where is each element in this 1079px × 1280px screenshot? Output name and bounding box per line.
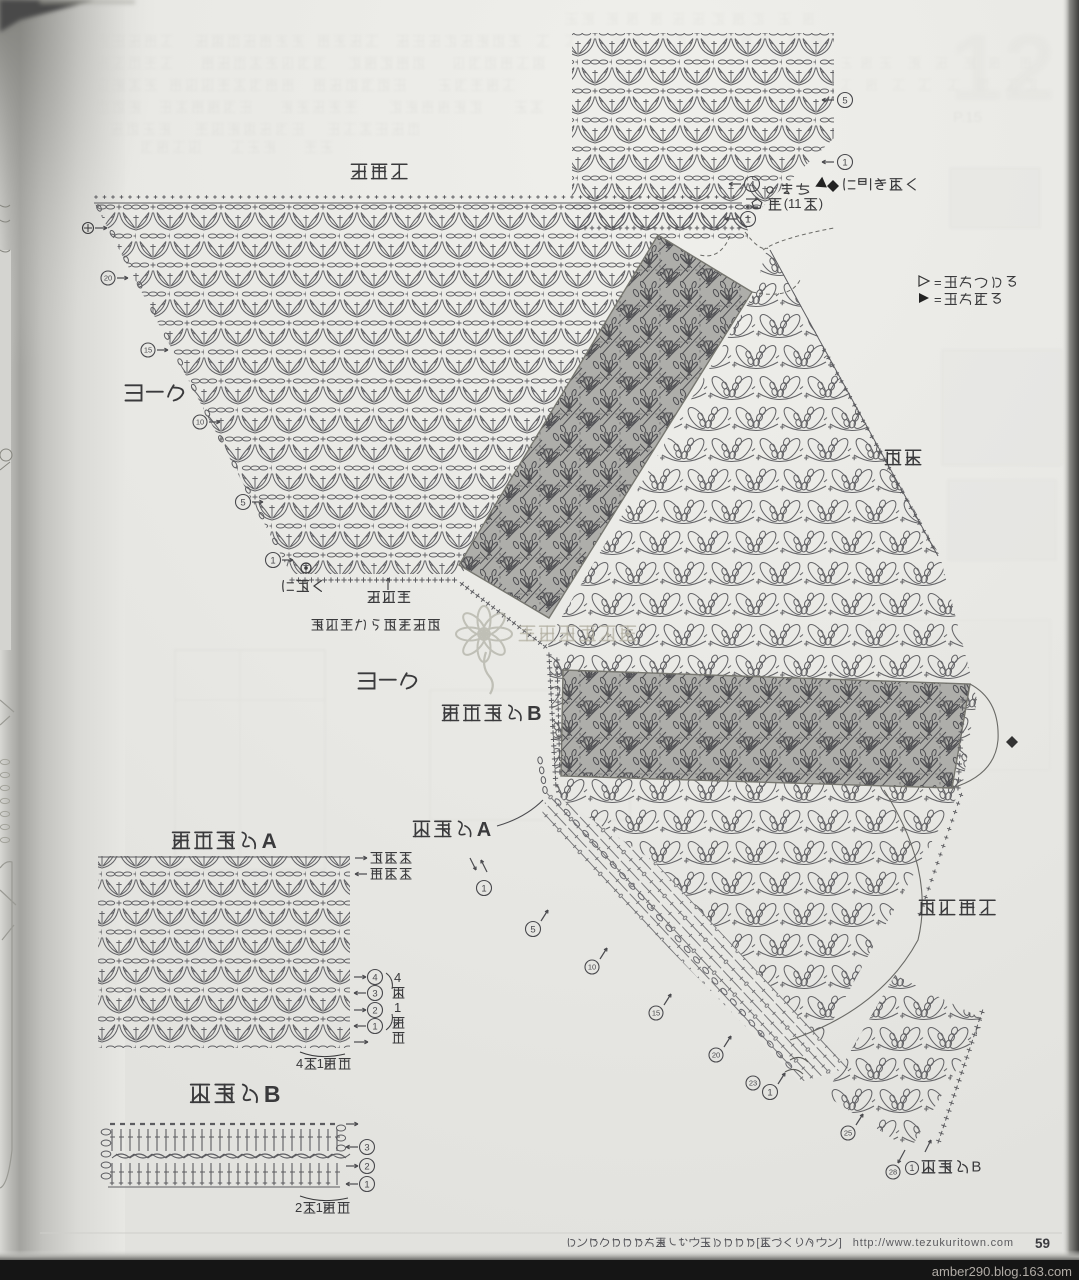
svg-text:23: 23 <box>749 1079 757 1088</box>
svg-text:28: 28 <box>889 1168 897 1177</box>
svg-text:12: 12 <box>950 15 1056 121</box>
svg-text:20: 20 <box>712 1051 720 1060</box>
svg-text:25: 25 <box>844 1129 852 1138</box>
svg-text:(11: (11 <box>784 196 802 211</box>
svg-text:2: 2 <box>295 1200 302 1215</box>
svg-text:4: 4 <box>394 970 401 985</box>
svg-text:3: 3 <box>364 1142 369 1153</box>
svg-text:10: 10 <box>588 963 596 972</box>
svg-text:]: ] <box>839 1237 842 1249</box>
svg-text:1: 1 <box>394 1000 401 1015</box>
svg-text:amber290.blog.163.com: amber290.blog.163.com <box>932 1264 1072 1279</box>
svg-text:10: 10 <box>196 418 204 427</box>
svg-text:B: B <box>264 1081 281 1107</box>
svg-text:1: 1 <box>909 1163 914 1173</box>
svg-text:2: 2 <box>364 1161 369 1172</box>
svg-text:1: 1 <box>842 157 847 168</box>
svg-text:5: 5 <box>240 497 245 508</box>
svg-text:20: 20 <box>104 274 112 283</box>
svg-text:5: 5 <box>842 95 847 106</box>
svg-text:4: 4 <box>372 972 377 983</box>
svg-text:B: B <box>971 1158 981 1175</box>
svg-text:1: 1 <box>767 1087 772 1098</box>
svg-text:P.15: P.15 <box>953 109 982 126</box>
svg-text:http://www.tezukuritown.com: http://www.tezukuritown.com <box>853 1237 1014 1249</box>
svg-text:1: 1 <box>316 1200 323 1215</box>
svg-text:A: A <box>262 830 277 853</box>
svg-text:1: 1 <box>481 883 486 894</box>
svg-text:1: 1 <box>270 555 275 566</box>
svg-text:=: = <box>934 292 942 307</box>
svg-text:15: 15 <box>652 1009 660 1018</box>
svg-text:[: [ <box>756 1237 759 1249</box>
svg-text:15: 15 <box>144 346 152 355</box>
svg-text:1: 1 <box>372 1021 377 1032</box>
svg-text:A: A <box>477 819 491 841</box>
svg-text:1: 1 <box>364 1179 369 1190</box>
svg-text:5: 5 <box>530 924 535 935</box>
svg-text:=: = <box>934 275 942 290</box>
svg-text:): ) <box>819 196 823 211</box>
svg-text:1: 1 <box>745 214 750 225</box>
svg-text:4: 4 <box>296 1056 303 1071</box>
svg-text:1: 1 <box>317 1056 324 1071</box>
svg-text:B: B <box>527 703 541 725</box>
svg-text:3: 3 <box>372 988 377 999</box>
svg-text:59: 59 <box>1035 1236 1050 1251</box>
svg-text:4: 4 <box>749 179 754 190</box>
svg-text:2: 2 <box>372 1005 377 1016</box>
